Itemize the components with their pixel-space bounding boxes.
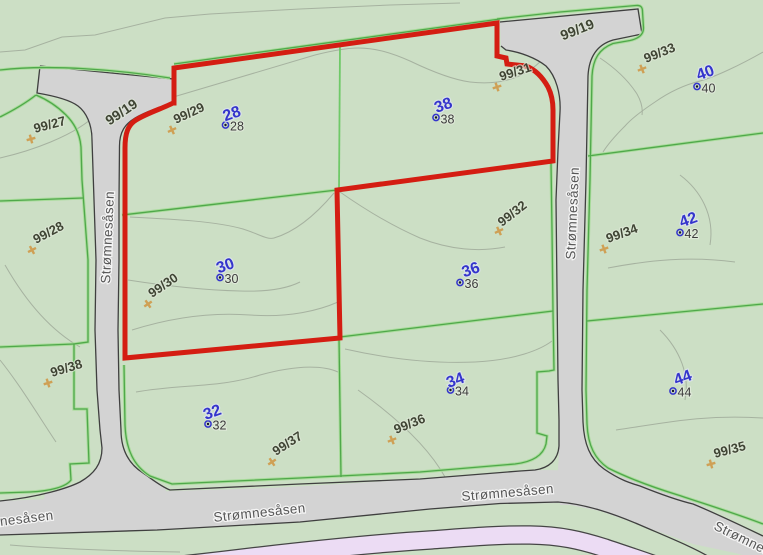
svg-text:40: 40	[702, 82, 716, 96]
